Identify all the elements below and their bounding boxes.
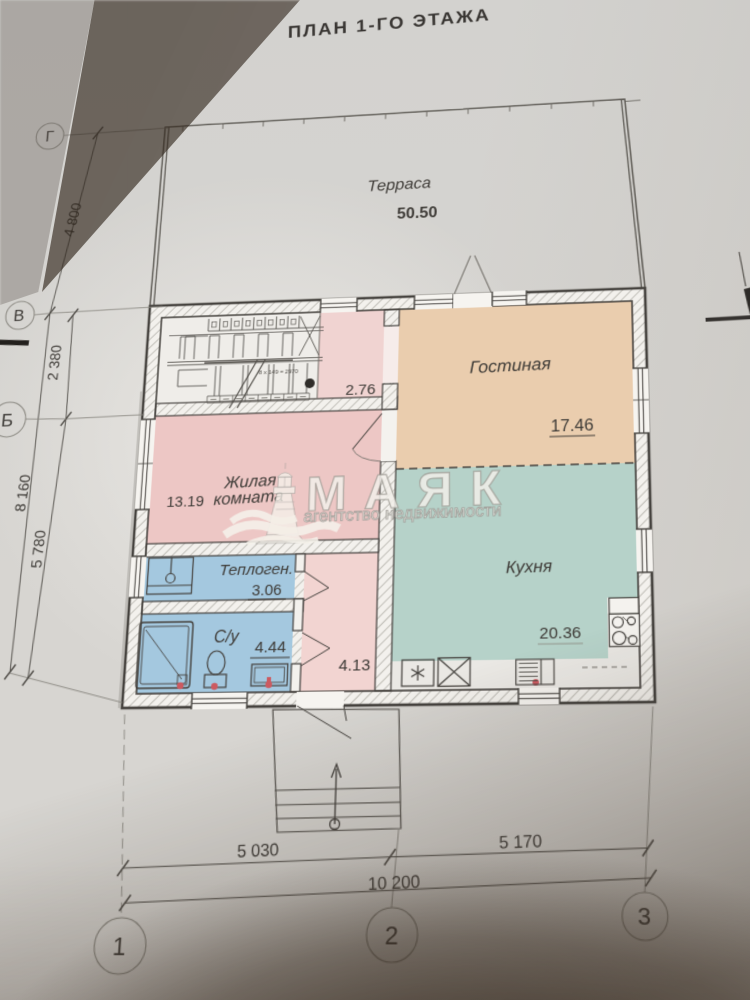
svg-text:8 160: 8 160: [11, 474, 34, 512]
svg-text:17.46: 17.46: [551, 416, 594, 436]
svg-text:2 380: 2 380: [44, 345, 65, 381]
svg-text:5 030: 5 030: [237, 840, 279, 862]
svg-text:4.44: 4.44: [254, 637, 287, 656]
svg-text:20.36: 20.36: [539, 623, 581, 642]
svg-text:Гостиная: Гостиная: [469, 355, 551, 378]
svg-text:10 200: 10 200: [368, 871, 421, 894]
svg-text:4.13: 4.13: [338, 655, 370, 674]
svg-text:С/у: С/у: [213, 626, 240, 646]
svg-text:Б: Б: [0, 411, 14, 431]
svg-text:3.06: 3.06: [251, 580, 282, 599]
svg-text:50.50: 50.50: [397, 204, 438, 223]
svg-text:2: 2: [384, 922, 398, 951]
svg-text:3: 3: [637, 903, 651, 931]
svg-text:5 170: 5 170: [499, 831, 543, 853]
svg-text:Теплоген.: Теплоген.: [219, 559, 294, 578]
svg-text:2.76: 2.76: [345, 380, 376, 398]
svg-text:Кухня: Кухня: [506, 557, 553, 578]
svg-text:1: 1: [112, 933, 127, 962]
svg-text:8 х 149 = 2970: 8 х 149 = 2970: [259, 369, 299, 377]
svg-text:Терраса: Терраса: [367, 175, 431, 196]
svg-text:В: В: [13, 308, 26, 326]
svg-text:13.19: 13.19: [166, 492, 205, 510]
svg-text:5 780: 5 780: [27, 530, 49, 568]
